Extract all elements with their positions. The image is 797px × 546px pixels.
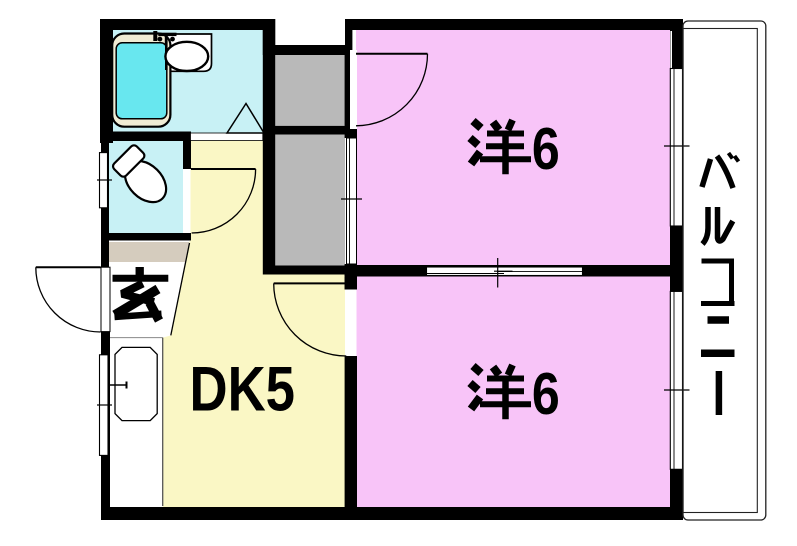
svg-text:6: 6	[532, 360, 560, 427]
svg-text:DK5: DK5	[190, 355, 296, 425]
svg-text:6: 6	[532, 115, 560, 182]
